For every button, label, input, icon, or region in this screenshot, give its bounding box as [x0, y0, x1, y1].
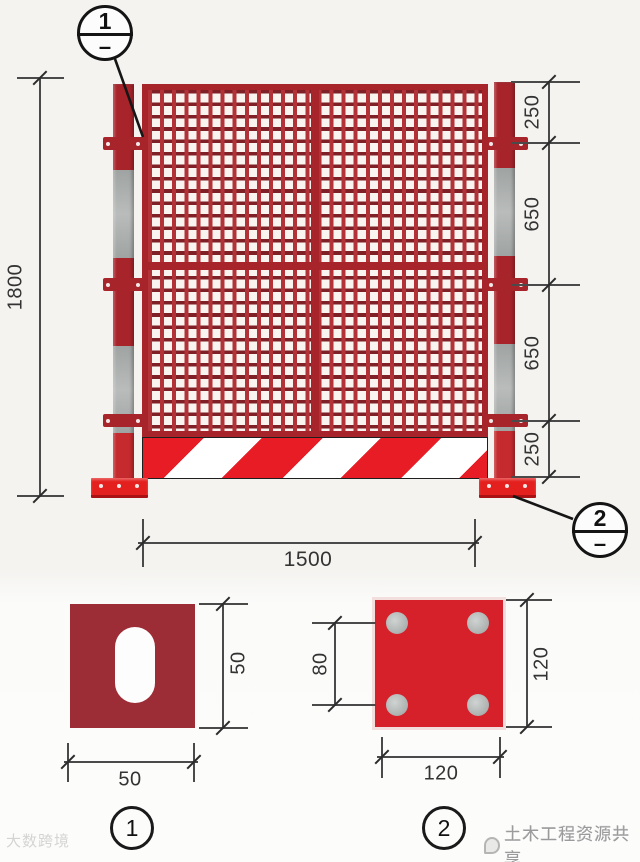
bolt-dot [136, 142, 140, 146]
dim-line [222, 604, 224, 728]
bolt-dot [489, 419, 493, 423]
bolt-dot [99, 484, 103, 488]
dim-label-650-upper: 650 [522, 197, 545, 232]
detail-callout-1: 1 – [77, 5, 133, 61]
bolt-hole [467, 694, 489, 716]
dim-label-1800: 1800 [5, 264, 28, 311]
callout-number: 2 [575, 505, 625, 530]
ext-line [312, 622, 376, 624]
detail-callout-2: 2 – [572, 502, 628, 558]
bolt-dot [135, 484, 139, 488]
bolt-dot [523, 484, 527, 488]
panel-center-divider [311, 84, 319, 437]
bolt-hole [467, 612, 489, 634]
detail1-width-label: 50 [118, 769, 141, 792]
watermark-right-text: 土木工程资源共享 [504, 820, 640, 862]
callout-sheet-ref: – [575, 533, 625, 555]
base-foot-left [91, 478, 148, 498]
base-foot-right [479, 478, 536, 498]
watermark-right: 土木工程资源共享 [484, 820, 640, 862]
callout-sheet-ref: – [80, 36, 130, 58]
dim-label-250-top: 250 [522, 95, 545, 130]
dim-label-650-lower: 650 [522, 336, 545, 371]
detail1-number: 1 [110, 806, 154, 850]
bolt-dot [106, 142, 110, 146]
bolt-dot [136, 283, 140, 287]
bolt-dot [505, 484, 509, 488]
dim-label-1500: 1500 [284, 548, 333, 572]
bolt-dot [489, 283, 493, 287]
bolt-dot [106, 419, 110, 423]
bolt-dot [136, 419, 140, 423]
dim-line-bottom [138, 542, 479, 544]
dim-line [526, 600, 528, 727]
callout-number: 1 [80, 8, 130, 33]
dim-line-left [39, 78, 41, 496]
detail2-plate [375, 600, 503, 727]
bolt-dot [489, 142, 493, 146]
detail1-height-label: 50 [228, 651, 251, 674]
bolt-dot [487, 484, 491, 488]
panel-mid-rail [142, 262, 488, 270]
bolt-dot [106, 283, 110, 287]
detail2-number: 2 [422, 806, 466, 850]
detail1-slot-hole [115, 627, 155, 703]
bolt-hole [386, 612, 408, 634]
leader-line-2 [513, 496, 573, 519]
detail2-hole-spacing-label: 80 [310, 652, 333, 675]
bolt-hole [386, 694, 408, 716]
warning-stripe-board [142, 437, 488, 479]
mesh-panel [142, 84, 488, 437]
bolt-dot [117, 484, 121, 488]
watermark-left: 大数跨境 [6, 830, 70, 851]
detail2-width-label: 120 [424, 763, 459, 786]
dim-line [334, 623, 336, 705]
dim-line [64, 761, 198, 763]
ext-line [312, 704, 376, 706]
dim-label-250-bottom: 250 [522, 432, 545, 467]
dim-line [377, 756, 504, 758]
detail1-plate [70, 604, 195, 728]
detail2-height-label: 120 [531, 647, 554, 682]
fence-drawing: 1800 250 [0, 0, 640, 862]
watermark-logo-icon [484, 837, 500, 854]
